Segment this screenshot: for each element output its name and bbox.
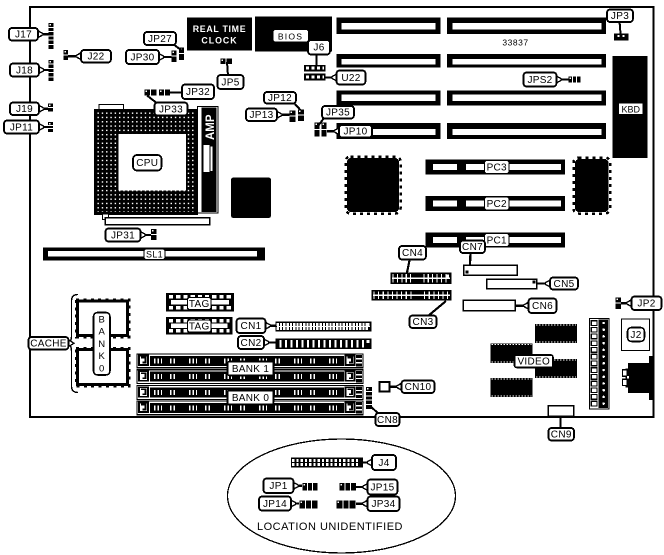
svg-text:JP30: JP30 [131,52,155,63]
svg-text:JP1: JP1 [269,481,287,492]
svg-text:PC1: PC1 [487,235,507,246]
svg-text:CN8: CN8 [377,415,398,426]
svg-text:JP33: JP33 [159,104,183,115]
svg-text:CN7: CN7 [462,242,483,253]
svg-text:JP11: JP11 [10,122,33,133]
svg-text:JP15: JP15 [371,482,395,493]
svg-text:JPS2: JPS2 [527,75,552,86]
svg-text:LOCATION UNIDENTIFIED: LOCATION UNIDENTIFIED [257,521,403,533]
svg-text:CLOCK: CLOCK [201,35,237,45]
svg-text:KBD: KBD [621,104,640,114]
svg-text:CACHE: CACHE [30,339,67,350]
svg-text:33837: 33837 [502,38,528,48]
svg-text:BANK 1: BANK 1 [232,364,270,375]
svg-text:PC2: PC2 [487,199,507,210]
svg-text:CN5: CN5 [554,279,575,290]
svg-text:JP32: JP32 [186,87,210,98]
svg-text:K: K [99,351,106,362]
svg-text:JP35: JP35 [326,108,350,119]
svg-text:JP3: JP3 [611,11,629,22]
svg-text:CN2: CN2 [241,338,262,349]
svg-text:JP14: JP14 [263,499,287,510]
svg-text:JP12: JP12 [268,93,292,104]
svg-text:J22: J22 [87,52,104,63]
svg-text:0: 0 [99,364,104,375]
svg-text:JP2: JP2 [637,299,655,310]
svg-text:JP34: JP34 [372,499,396,510]
svg-text:CN1: CN1 [241,321,262,332]
svg-text:J18: J18 [16,65,33,76]
svg-text:JP27: JP27 [148,34,172,45]
svg-text:J6: J6 [313,43,324,54]
svg-text:SL1: SL1 [146,249,163,259]
svg-text:BANK 0: BANK 0 [232,393,270,404]
svg-text:B: B [99,314,105,325]
svg-text:TAG: TAG [189,321,210,332]
svg-text:J2: J2 [630,330,641,341]
svg-text:VIDEO: VIDEO [517,357,550,368]
svg-text:JP5: JP5 [221,77,239,88]
svg-text:CN3: CN3 [413,317,434,328]
svg-text:BIOS: BIOS [278,31,303,41]
svg-text:CN4: CN4 [402,248,423,259]
svg-text:CN10: CN10 [405,382,432,393]
svg-text:A: A [99,327,106,338]
svg-text:J17: J17 [15,30,32,41]
svg-text:REAL TIME: REAL TIME [193,24,247,34]
svg-text:CN6: CN6 [532,301,553,312]
svg-text:J4: J4 [378,458,389,469]
svg-text:JP13: JP13 [250,110,274,121]
svg-text:AMP: AMP [205,114,217,140]
svg-text:CPU: CPU [136,158,158,169]
svg-text:JP31: JP31 [111,230,135,241]
svg-text:TAG: TAG [189,299,210,310]
svg-text:N: N [98,339,105,350]
svg-text:U22: U22 [341,73,360,84]
svg-text:JP10: JP10 [344,127,368,138]
svg-text:PC3: PC3 [487,162,507,173]
svg-text:CN9: CN9 [551,430,572,441]
svg-text:J19: J19 [16,104,33,115]
